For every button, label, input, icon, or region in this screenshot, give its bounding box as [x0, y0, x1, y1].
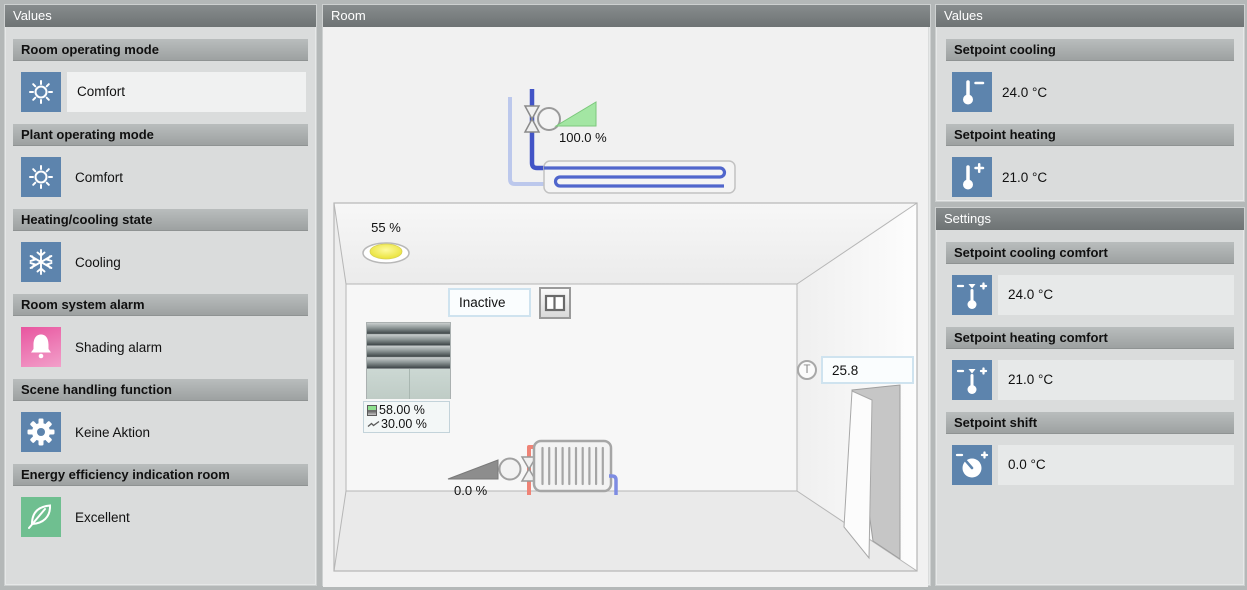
window-pane-icon	[544, 294, 566, 312]
thermometer-adjust-icon	[952, 360, 992, 400]
dial-icon	[952, 445, 992, 485]
temperature-sensor-icon: T	[797, 360, 817, 380]
section-setpoint-heating-comfort: Setpoint heating comfort	[946, 327, 1234, 349]
section-setpoint-heating: Setpoint heating	[946, 124, 1234, 146]
setpoint-cooling-comfort-value[interactable]: 24.0 °C	[998, 275, 1234, 315]
scene-handling-value: Keine Aktion	[75, 425, 150, 440]
setpoint-heating-comfort-value[interactable]: 21.0 °C	[998, 360, 1234, 400]
setpoint-heating-row: 21.0 °C	[952, 157, 1234, 197]
setpoint-shift-row: 0.0 °C	[952, 445, 1234, 485]
room-panel: Room	[322, 4, 931, 586]
energy-efficiency-row: Excellent	[21, 497, 306, 537]
thermometer-minus-icon	[952, 72, 992, 112]
blind-slat-angle-value: 30.00 %	[381, 417, 427, 431]
section-setpoint-cooling: Setpoint cooling	[946, 39, 1234, 61]
snowflake-icon	[21, 242, 61, 282]
plant-operating-mode-value: Comfort	[75, 170, 123, 185]
right-values-title: Values	[936, 5, 1244, 27]
window-button[interactable]	[539, 287, 571, 319]
settings-panel: Settings Setpoint cooling comfort 24.0 °…	[935, 207, 1245, 586]
light-level-value: 55 %	[363, 220, 409, 235]
setpoint-cooling-comfort-row: 24.0 °C	[952, 275, 1234, 315]
radiator-valve-value: 0.0 %	[454, 483, 487, 498]
setpoint-shift-value[interactable]: 0.0 °C	[998, 445, 1234, 485]
blind-slats	[367, 323, 450, 369]
blind-values-box: 58.00 % 30.00 %	[363, 401, 450, 433]
door	[844, 385, 900, 559]
blind-graphic	[366, 322, 451, 399]
ceiling-lamp-icon	[363, 243, 409, 263]
chilled-beam	[510, 89, 735, 193]
heating-cooling-state-row: Cooling	[21, 242, 306, 282]
blind-position-icon	[367, 405, 377, 416]
slat-angle-icon	[367, 419, 380, 429]
leaf-icon	[21, 497, 61, 537]
heating-cooling-state-value: Cooling	[75, 255, 121, 270]
plant-operating-mode-row: Comfort	[21, 157, 306, 197]
section-energy-efficiency: Energy efficiency indication room	[13, 464, 308, 486]
room-operating-mode-value[interactable]: Comfort	[67, 72, 306, 112]
section-room-operating-mode: Room operating mode	[13, 39, 308, 61]
section-setpoint-shift: Setpoint shift	[946, 412, 1234, 434]
section-scene-handling: Scene handling function	[13, 379, 308, 401]
settings-title: Settings	[936, 208, 1244, 230]
setpoint-cooling-row: 24.0 °C	[952, 72, 1234, 112]
section-plant-operating-mode: Plant operating mode	[13, 124, 308, 146]
room-system-alarm-row: Shading alarm	[21, 327, 306, 367]
room-graphic	[323, 27, 928, 587]
setpoint-cooling-value: 24.0 °C	[1002, 85, 1047, 100]
blind-position-value: 58.00 %	[379, 403, 425, 417]
energy-efficiency-value: Excellent	[75, 510, 130, 525]
setpoint-heating-value: 21.0 °C	[1002, 170, 1047, 185]
room-system-alarm-value: Shading alarm	[75, 340, 162, 355]
room-temperature-field[interactable]: 25.8	[821, 356, 914, 384]
window-state-field[interactable]: Inactive	[448, 288, 531, 317]
sun-icon	[21, 157, 61, 197]
room-panel-title: Room	[323, 5, 930, 27]
left-values-panel: Values Room operating mode Comfort Plant…	[4, 4, 317, 586]
setpoint-heating-comfort-row: 21.0 °C	[952, 360, 1234, 400]
left-panel-title: Values	[5, 5, 316, 27]
scene-handling-row: Keine Aktion	[21, 412, 306, 452]
thermometer-adjust-icon	[952, 275, 992, 315]
window-glass	[367, 369, 450, 399]
section-heating-cooling-state: Heating/cooling state	[13, 209, 308, 231]
right-values-panel: Values Setpoint cooling 24.0 °C Setpoint…	[935, 4, 1245, 202]
thermometer-plus-icon	[952, 157, 992, 197]
alarm-bell-icon	[21, 327, 61, 367]
valve-position-ramp-green	[556, 102, 596, 126]
section-setpoint-cooling-comfort: Setpoint cooling comfort	[946, 242, 1234, 264]
section-room-system-alarm: Room system alarm	[13, 294, 308, 316]
sun-icon	[21, 72, 61, 112]
gear-icon	[21, 412, 61, 452]
room-operating-mode-row: Comfort	[21, 72, 306, 112]
chilled-beam-valve-value: 100.0 %	[559, 130, 607, 145]
